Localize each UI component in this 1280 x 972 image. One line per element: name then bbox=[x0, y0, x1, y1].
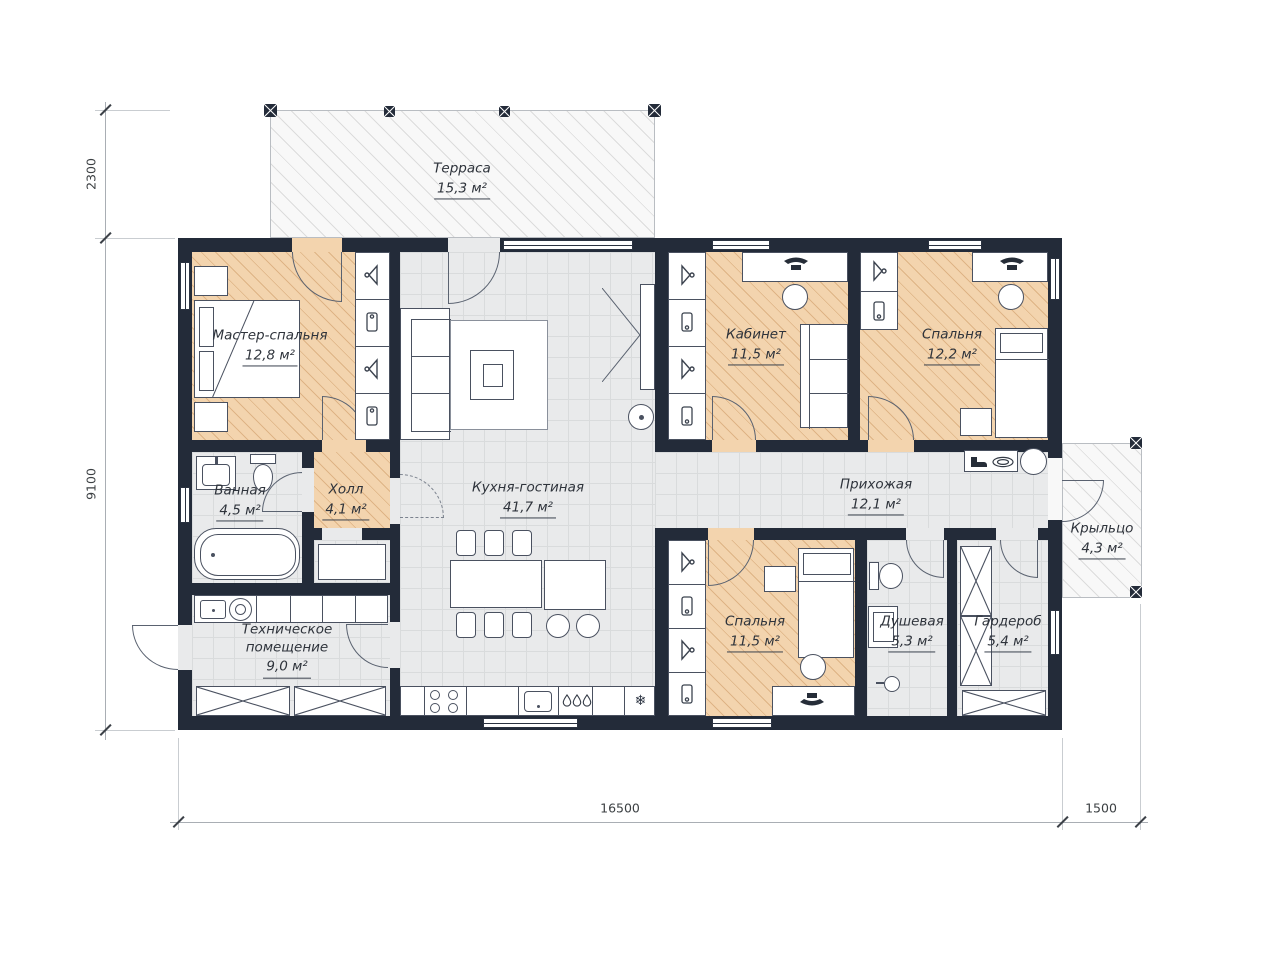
wardrobe-crate bbox=[960, 546, 992, 616]
drawer-icon bbox=[681, 406, 693, 426]
window-master bbox=[180, 262, 190, 310]
room-label-shower: Душевая 5,3 м² bbox=[880, 613, 944, 652]
cabinet-divider bbox=[355, 393, 390, 394]
washing-machine bbox=[229, 598, 252, 621]
room-name: Душевая bbox=[880, 613, 944, 631]
porch-post-icon bbox=[1130, 586, 1142, 598]
toilet-bowl bbox=[879, 563, 903, 589]
floor-lamp bbox=[628, 404, 654, 430]
room-label-bedroom-3: Спальня 11,5 м² bbox=[725, 613, 785, 652]
drawer-icon bbox=[681, 684, 693, 704]
counter-divider bbox=[518, 687, 519, 715]
toilet-tank bbox=[869, 562, 879, 590]
room-area: 12,8 м² bbox=[242, 347, 298, 367]
room-area: 5,3 м² bbox=[888, 633, 935, 653]
drawer-icon bbox=[873, 301, 885, 321]
terrace-post-icon bbox=[384, 106, 395, 117]
desk-chair bbox=[800, 654, 826, 680]
door-opening bbox=[390, 478, 400, 524]
cabinet-divider bbox=[860, 291, 898, 292]
door-opening bbox=[906, 528, 944, 540]
sofa bbox=[800, 324, 848, 428]
extension-line bbox=[178, 738, 179, 830]
bar-stool bbox=[546, 614, 570, 638]
door-opening bbox=[712, 440, 756, 452]
room-area: 4,5 м² bbox=[216, 502, 263, 522]
counter-divider bbox=[592, 687, 593, 715]
pillow bbox=[803, 553, 851, 575]
dimension-house-depth: 9100 bbox=[84, 468, 99, 500]
sofa-armrest-line bbox=[411, 431, 451, 432]
bathtub-drain bbox=[211, 553, 215, 557]
terrace-post-icon bbox=[499, 106, 510, 117]
room-name: Прихожая bbox=[840, 476, 912, 494]
cabinet-divider bbox=[668, 672, 706, 673]
window-bedroom-2-side bbox=[1050, 258, 1060, 300]
basin-tap bbox=[876, 682, 884, 684]
basin-tap bbox=[215, 457, 218, 464]
room-area: 15,3 м² bbox=[434, 180, 490, 200]
counter-divider bbox=[424, 687, 425, 715]
window-office bbox=[712, 240, 770, 250]
dining-chair bbox=[512, 612, 532, 638]
extension-line bbox=[95, 730, 175, 731]
terrace-post-icon bbox=[648, 104, 661, 117]
hat-icon bbox=[991, 456, 1015, 468]
hanger-icon bbox=[679, 551, 695, 573]
dining-chair bbox=[456, 530, 476, 556]
toilet-tank bbox=[250, 454, 276, 464]
drawer-icon bbox=[681, 596, 693, 616]
coffee-table-inner bbox=[483, 364, 503, 387]
dining-chair bbox=[512, 530, 532, 556]
cabinet-divider bbox=[668, 299, 706, 300]
dishwasher-drop-icon bbox=[582, 694, 592, 707]
door-opening bbox=[302, 468, 314, 512]
room-name: Холл bbox=[329, 481, 364, 499]
window-kitchen bbox=[483, 718, 578, 728]
room-label-kitchen-living: Кухня-гостиная 41,7 м² bbox=[472, 479, 584, 518]
cabinet-divider bbox=[355, 346, 390, 347]
pillow bbox=[1000, 333, 1043, 353]
computer-icon bbox=[998, 254, 1026, 271]
counter-divider bbox=[256, 596, 257, 622]
floor-plan-canvas: ❄ Терраса 15,3 м² Мастер-спальня 12,8 м²… bbox=[0, 0, 1280, 972]
utility-sink bbox=[200, 600, 226, 619]
room-area: 12,1 м² bbox=[848, 496, 904, 516]
hanger-icon bbox=[871, 260, 887, 282]
round-pouf bbox=[1020, 448, 1047, 475]
dishwasher-drop-icon bbox=[572, 694, 582, 707]
lamp-center bbox=[639, 415, 644, 420]
room-label-bedroom-2: Спальня 12,2 м² bbox=[922, 326, 982, 365]
window-bedroom-3 bbox=[712, 718, 772, 728]
room-name: Кабинет bbox=[726, 326, 786, 344]
sink-drain bbox=[212, 609, 215, 612]
bar-stool bbox=[576, 614, 600, 638]
hanger-icon bbox=[679, 264, 695, 286]
room-label-entry-hall: Прихожая 12,1 м² bbox=[840, 476, 912, 515]
hanger-icon bbox=[364, 358, 380, 380]
window-bathroom bbox=[180, 487, 190, 523]
extension-line bbox=[1062, 738, 1063, 830]
room-area: 9,0 м² bbox=[263, 659, 310, 679]
shoe-bench bbox=[964, 450, 1018, 472]
cabinet-divider bbox=[668, 346, 706, 347]
door-opening bbox=[322, 440, 366, 452]
single-bed bbox=[995, 328, 1048, 438]
door-opening bbox=[178, 625, 192, 670]
window-terrace-slider bbox=[503, 240, 633, 250]
counter-divider bbox=[558, 687, 559, 715]
sink-drain bbox=[537, 705, 540, 708]
room-area: 41,7 м² bbox=[500, 499, 556, 519]
room-name: Гардероб bbox=[974, 613, 1041, 631]
dimension-terrace-depth: 2300 bbox=[84, 158, 99, 190]
door-opening bbox=[390, 622, 400, 668]
blanket-line bbox=[799, 581, 855, 582]
tv-view-lines bbox=[602, 288, 640, 382]
room-area: 4,3 м² bbox=[1078, 540, 1125, 560]
door-opening bbox=[868, 440, 914, 452]
bathtub bbox=[194, 528, 300, 580]
stove-burner-icon bbox=[430, 690, 440, 700]
nightstand bbox=[194, 266, 228, 296]
drawer-icon bbox=[366, 406, 378, 426]
room-label-hall: Холл 4,1 м² bbox=[322, 481, 369, 520]
door-opening bbox=[292, 238, 342, 252]
counter-divider bbox=[322, 596, 323, 622]
stove-burner-icon bbox=[448, 703, 458, 713]
room-label-tech: Техническое помещение 9,0 м² bbox=[221, 622, 353, 679]
computer-icon bbox=[798, 692, 826, 709]
drawer-icon bbox=[366, 312, 378, 332]
dining-chair bbox=[484, 530, 504, 556]
window-wardrobe bbox=[1050, 610, 1060, 655]
door-opening bbox=[708, 528, 754, 540]
dimension-porch-width: 1500 bbox=[1085, 801, 1117, 816]
storage-crate bbox=[294, 686, 386, 716]
door-opening bbox=[996, 528, 1038, 540]
dining-table bbox=[450, 560, 542, 608]
nightstand bbox=[194, 402, 228, 432]
sofa-cushion-line bbox=[411, 356, 451, 357]
wardrobe-crate bbox=[962, 690, 1046, 716]
sofa-armrest-line bbox=[411, 319, 451, 320]
hanger-icon bbox=[679, 639, 695, 661]
single-bed bbox=[798, 548, 854, 658]
extension-line bbox=[95, 238, 175, 239]
cabinet-divider bbox=[355, 299, 390, 300]
kitchen-sink bbox=[524, 691, 552, 712]
terrace-post-icon bbox=[264, 104, 277, 117]
room-name: Крыльцо bbox=[1071, 520, 1134, 538]
door-arc-tech-exterior bbox=[132, 625, 178, 670]
fridge-snowflake-icon: ❄ bbox=[626, 688, 655, 714]
dimension-line-left bbox=[105, 102, 106, 740]
counter-divider bbox=[290, 596, 291, 622]
drawer-icon bbox=[681, 312, 693, 332]
sofa-back-line bbox=[809, 325, 810, 429]
room-area: 11,5 м² bbox=[728, 346, 784, 366]
sofa-back-line bbox=[411, 319, 412, 431]
counter-divider bbox=[624, 687, 625, 715]
desk-chair bbox=[998, 284, 1024, 310]
washer-drum bbox=[235, 604, 246, 615]
cabinet-divider bbox=[668, 628, 706, 629]
room-name: Мастер-спальня bbox=[212, 327, 327, 345]
room-name: Техническое помещение bbox=[221, 622, 353, 657]
kitchen-island bbox=[544, 560, 606, 610]
dimension-house-length: 16500 bbox=[600, 801, 640, 816]
dining-chair bbox=[484, 612, 504, 638]
room-label-master-bedroom: Мастер-спальня 12,8 м² bbox=[212, 327, 327, 366]
room-area: 12,2 м² bbox=[924, 346, 980, 366]
hanger-icon bbox=[679, 358, 695, 380]
sofa bbox=[400, 308, 450, 440]
room-name: Терраса bbox=[433, 160, 491, 178]
nightstand bbox=[960, 408, 992, 436]
room-area: 4,1 м² bbox=[322, 501, 369, 521]
counter-divider bbox=[355, 596, 356, 622]
sofa-cushion-line bbox=[809, 359, 849, 360]
blanket-line bbox=[996, 359, 1049, 360]
room-label-wardrobe: Гардероб 5,4 м² bbox=[974, 613, 1041, 652]
sofa-cushion-line bbox=[411, 393, 451, 394]
room-name: Спальня bbox=[725, 613, 785, 631]
counter-divider bbox=[466, 687, 467, 715]
door-opening bbox=[448, 238, 500, 252]
room-label-porch: Крыльцо 4,3 м² bbox=[1071, 520, 1134, 559]
hanger-icon bbox=[364, 264, 380, 286]
room-name: Спальня bbox=[922, 326, 982, 344]
extension-line bbox=[1140, 604, 1141, 830]
window-bedroom-2-top bbox=[928, 240, 982, 250]
dimension-line-bottom bbox=[170, 822, 1148, 823]
door-opening bbox=[322, 528, 362, 540]
room-name: Кухня-гостиная bbox=[472, 479, 584, 497]
storage-crate bbox=[196, 686, 290, 716]
desk-chair bbox=[782, 284, 808, 310]
room-label-office: Кабинет 11,5 м² bbox=[726, 326, 786, 365]
tv-unit bbox=[640, 284, 655, 390]
stove-burner-icon bbox=[448, 690, 458, 700]
porch-post-icon bbox=[1130, 437, 1142, 449]
nightstand bbox=[764, 566, 796, 592]
coffee-table bbox=[470, 350, 514, 400]
cabinet-divider bbox=[668, 584, 706, 585]
room-area: 5,4 м² bbox=[984, 633, 1031, 653]
closet-shelf bbox=[318, 544, 386, 580]
computer-icon bbox=[782, 254, 810, 271]
small-washbasin bbox=[884, 676, 900, 692]
room-label-bathroom: Ванная 4,5 м² bbox=[214, 482, 266, 521]
dishwasher-drop-icon bbox=[562, 694, 572, 707]
room-label-terrace: Терраса 15,3 м² bbox=[433, 160, 491, 199]
room-area: 11,5 м² bbox=[727, 633, 783, 653]
dining-chair bbox=[456, 612, 476, 638]
shoe-icon bbox=[969, 455, 987, 468]
cabinet-divider bbox=[668, 393, 706, 394]
door-opening bbox=[1048, 458, 1062, 520]
stove-burner-icon bbox=[430, 703, 440, 713]
room-name: Ванная bbox=[214, 482, 266, 500]
sofa-cushion-line bbox=[809, 393, 849, 394]
